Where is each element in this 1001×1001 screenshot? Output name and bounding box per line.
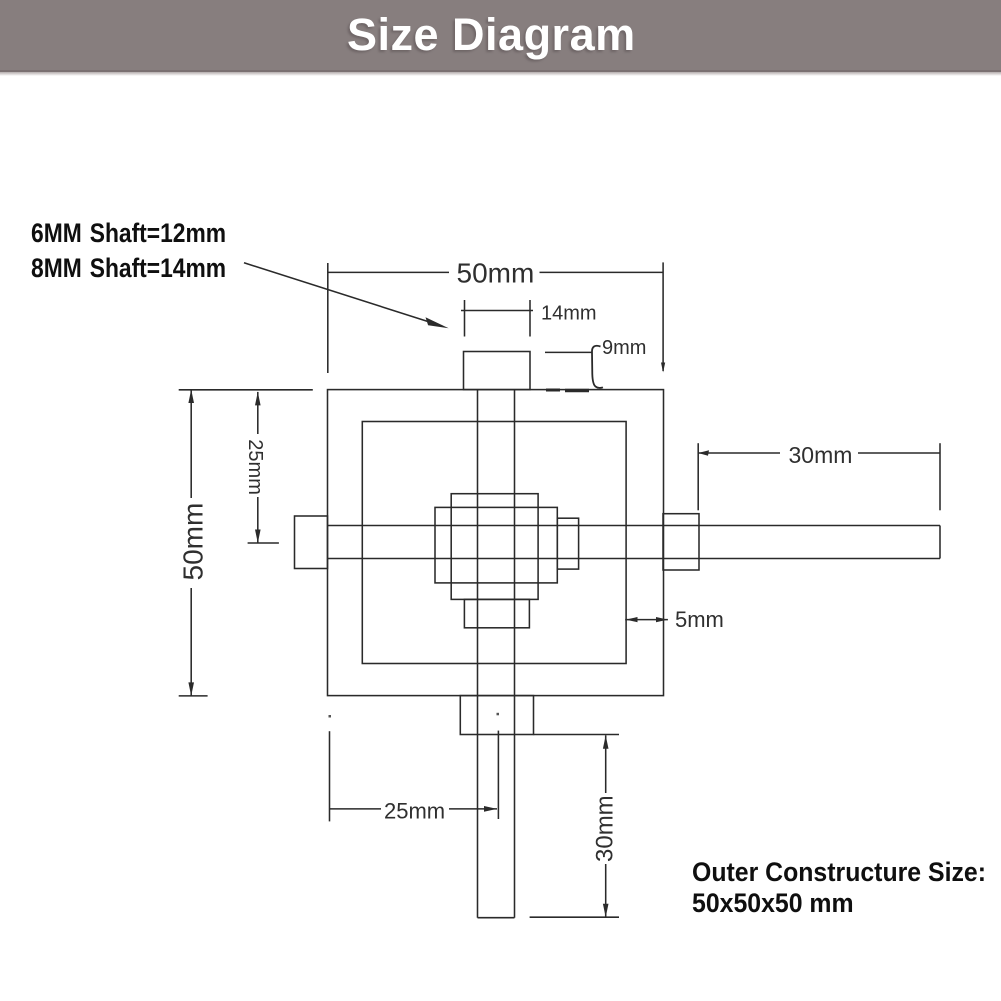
svg-text:25mm: 25mm (384, 799, 445, 824)
svg-text:30mm: 30mm (789, 442, 853, 468)
svg-text:5mm: 5mm (675, 607, 724, 632)
svg-text:9mm: 9mm (602, 337, 646, 359)
svg-text:50mm: 50mm (457, 257, 535, 288)
svg-text:25mm: 25mm (244, 439, 266, 495)
svg-text:30mm: 30mm (592, 795, 619, 862)
svg-text:14mm: 14mm (541, 303, 597, 325)
svg-text:50mm: 50mm (178, 503, 209, 581)
